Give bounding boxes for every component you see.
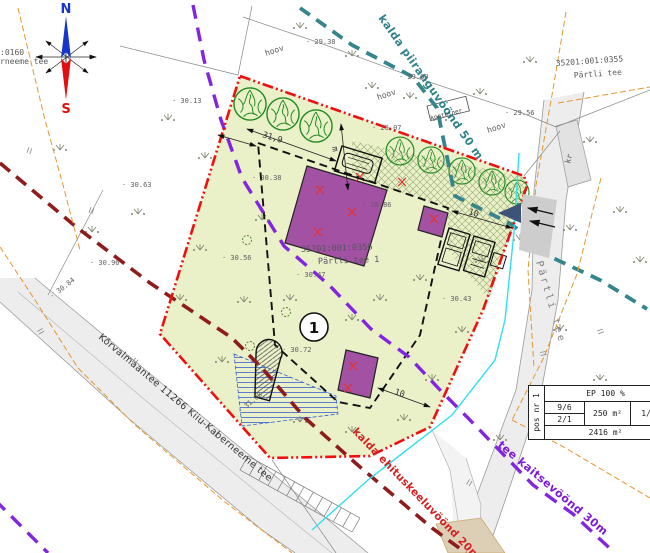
boundary-tick-icon [27,147,32,154]
elevation-label: · 30.56 [222,254,252,262]
spec-table: pos nr 1 EP 100 % 9/6 2/1 250 m² 1/2 241… [528,385,650,440]
plot-marker-number: 1 [309,319,319,337]
yard-label: hoov [264,43,285,58]
ratio-cell: 1/2 [631,402,650,426]
grass-tuft-icon [613,206,626,213]
site-plan-drawing: :0160 rneeme tee kalda piiranguvöönd 50 … [0,0,650,553]
elevation-label: · 29.60 [399,73,429,81]
elevation-label: · 29.56 [505,109,535,117]
grass-tuft-icon [161,114,174,121]
north-parcel-cadastre: 35201:001:0355 [556,54,624,68]
grass-tuft-icon [403,92,416,99]
small-building-south [338,350,378,398]
grass-tuft-icon [131,208,144,215]
edge-road-label: rneeme tee [0,57,48,66]
road-protection-label: tee kaitsevöönd 30m [495,438,611,538]
elevation-label: · 30.63 [122,181,152,189]
elevation-label: · 30.84 [48,276,76,300]
pos-label: pos nr 1 [532,393,541,432]
compass-north-label: N [61,2,72,17]
grass-tuft-icon [365,82,378,89]
grass-tuft-icon [593,374,606,381]
elevation-label: · 30.38 [252,174,282,182]
grass-tuft-icon [583,136,596,143]
floors-b-cell: 2/1 [545,414,585,426]
boundary-tick-icon [597,329,604,334]
plot-area-cell: 2416 m² [545,426,650,439]
elevation-label: · 30.86 [362,201,392,209]
south-needle-icon [61,58,71,100]
grass-tuft-icon [563,224,576,231]
spec-table-pos-cell: pos nr 1 [529,386,545,439]
yard-label: hoov [376,87,397,102]
road-protection-line-sw [0,500,48,553]
north-needle-icon [61,16,71,58]
elevation-label: · 30.47 [296,271,326,279]
yard-label: hoov [486,120,507,135]
elevation-label: · 30.96 [90,259,120,267]
grass-tuft-icon [633,256,646,263]
compass-south-label: S [61,102,70,117]
grass-tuft-icon [473,88,486,95]
grass-tuft-icon [198,152,211,159]
grass-tuft-icon [293,22,306,29]
elevation-label: · 30.72 [282,346,312,354]
grass-tuft-icon [53,144,66,151]
floors-a-cell: 9/6 [545,402,585,414]
north-parcel-name: Pärtli tee [574,68,623,80]
plan-svg: :0160 rneeme tee kalda piiranguvöönd 50 … [0,0,650,553]
elevation-label: · 30.43 [442,295,472,303]
site-parcel-name: Pärtli tee 1 [318,255,380,267]
grass-tuft-icon [523,56,536,63]
elevation-label: · 29.38 [306,38,336,46]
building-area-cell: 250 m² [585,402,631,426]
grass-tuft-icon [85,226,98,233]
edge-cadastre-label: :0160 [0,48,24,57]
elevation-label: · 29.07 [372,124,402,132]
build-intensity-cell: EP 100 % [545,386,650,402]
elevation-label: · 30.13 [172,97,202,105]
